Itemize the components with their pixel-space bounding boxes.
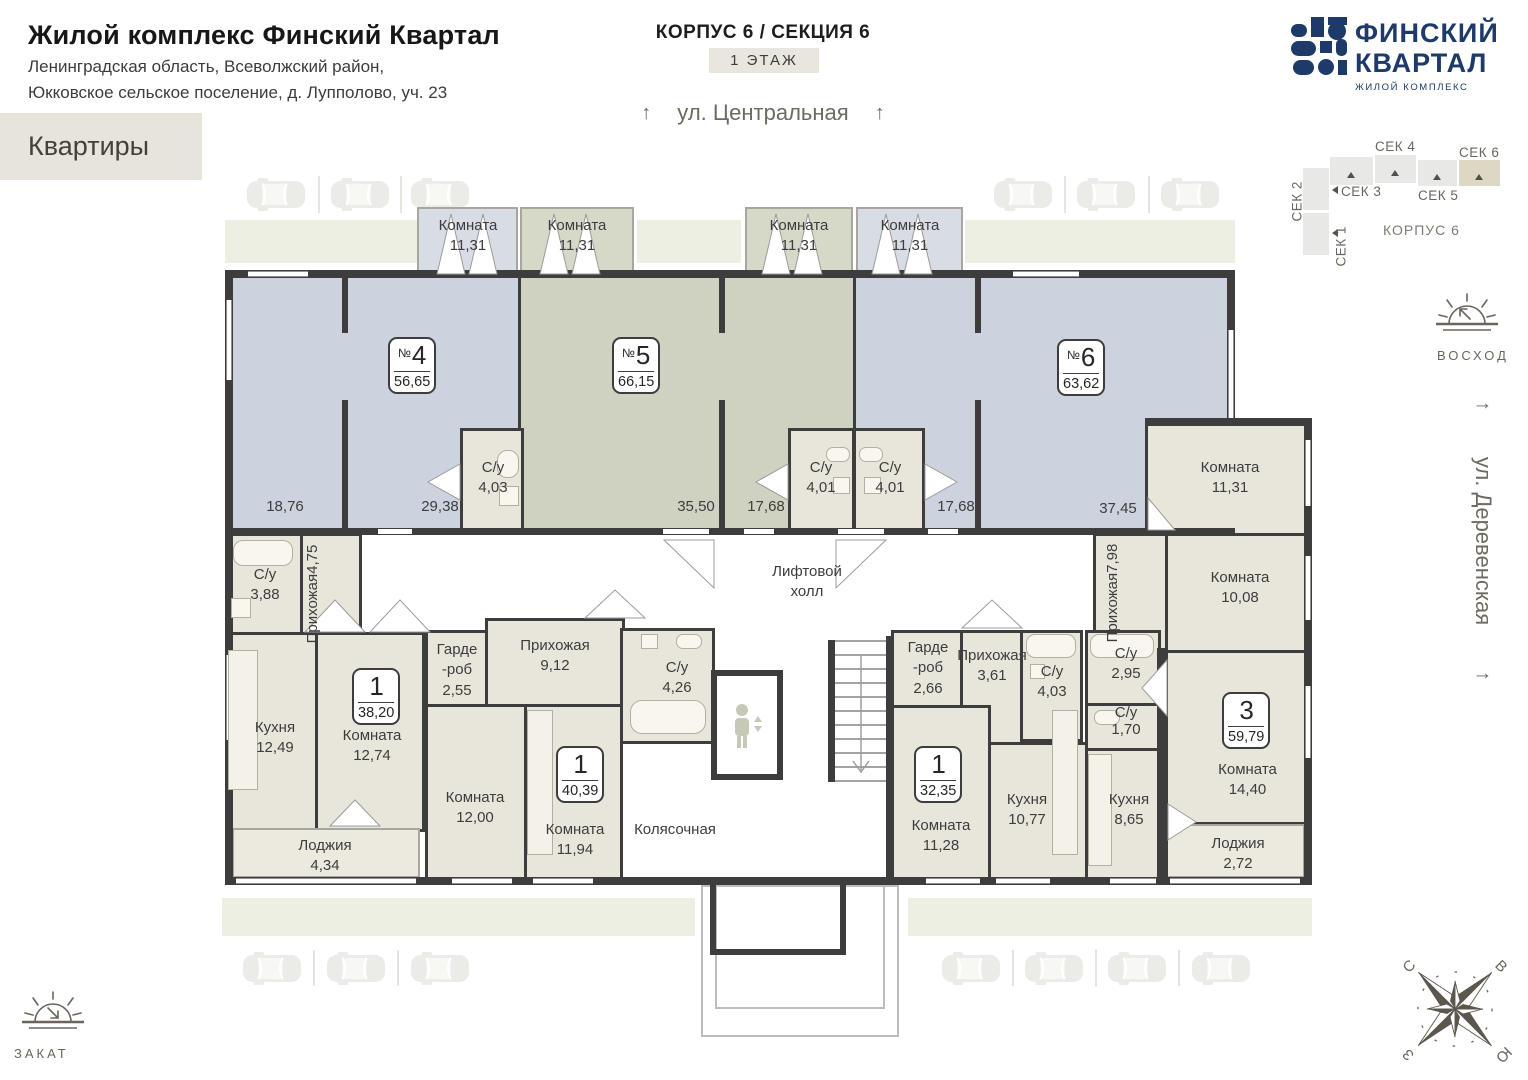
logo-line-1: ФИНСКИЙ xyxy=(1355,18,1499,48)
room-label: Прихожая9,12 xyxy=(495,636,615,677)
room-label: Гарде -роб2,66 xyxy=(896,638,960,699)
room-label: Комната11,31 xyxy=(1160,458,1300,499)
room-label: С/у4,01 xyxy=(789,458,853,499)
sidewalk-band xyxy=(908,898,1312,936)
staircase xyxy=(834,640,888,782)
floorplan-page: Жилой комплекс Финский Квартал Ленинград… xyxy=(0,0,1528,1080)
parked-car-icon xyxy=(1076,176,1136,213)
toilet-icon xyxy=(676,634,702,649)
room-label: Комната11,31 xyxy=(746,216,852,257)
zone-area: 37,45 xyxy=(1088,500,1148,517)
bathtub-icon xyxy=(1026,634,1076,658)
wall xyxy=(975,270,981,333)
address-line-1: Ленинградская область, Всеволжский район… xyxy=(28,57,384,77)
zone-area: 18,76 xyxy=(255,498,315,515)
sunset-icon xyxy=(20,986,86,1038)
parking-divider xyxy=(1148,176,1150,213)
stroller-room-label: Колясочная xyxy=(615,820,735,840)
section-label-6: СЕК 6 xyxy=(1459,145,1499,160)
section-pointer-3 xyxy=(1347,172,1355,178)
logo-tagline: ЖИЛОЙ КОМПЛЕКС xyxy=(1355,82,1499,93)
apartment-badge-4[interactable]: №4 56,65 xyxy=(388,337,436,394)
section-label-3: СЕК 3 xyxy=(1341,184,1381,199)
parked-car-icon xyxy=(1024,950,1084,987)
window xyxy=(996,878,1050,884)
room-label: Прихожая7,98 xyxy=(1103,538,1159,648)
section-block-2[interactable] xyxy=(1303,168,1329,210)
parking-divider xyxy=(397,950,399,986)
room-label: Лоджия4,34 xyxy=(250,836,400,877)
parked-car-icon xyxy=(246,176,306,213)
sidewalk-band xyxy=(965,220,1235,263)
door-opening xyxy=(838,529,884,534)
parking-divider xyxy=(313,950,315,986)
sunset-label: ЗАКАТ xyxy=(14,1046,69,1061)
flats-tab-label: Квартиры xyxy=(28,131,149,162)
room-label: Комната11,28 xyxy=(895,816,987,857)
building-section-label: КОРПУС 6 / СЕКЦИЯ 6 xyxy=(560,22,966,44)
sidewalk-band xyxy=(222,898,695,936)
room-label: Комната12,74 xyxy=(322,726,422,767)
street-central-label: ул. Центральная xyxy=(677,100,848,126)
section-pointer-4 xyxy=(1391,170,1399,176)
parking-divider xyxy=(400,176,402,213)
section-pointer-2 xyxy=(1332,186,1338,194)
wall-exterior xyxy=(1145,418,1312,426)
room-label: Комната11,31 xyxy=(521,216,633,257)
room-label: С/у4,03 xyxy=(462,458,524,499)
section-label-1: СЕК 1 xyxy=(1334,207,1349,267)
wall xyxy=(828,640,835,782)
sunrise-icon xyxy=(1434,288,1500,340)
section-label-2: СЕК 2 xyxy=(1290,162,1305,222)
window xyxy=(1305,686,1311,758)
parked-car-icon xyxy=(1160,176,1220,213)
room-label: Лоджия2,72 xyxy=(1178,834,1298,875)
floor-badge[interactable]: 1 ЭТАЖ xyxy=(709,48,819,73)
parked-car-icon xyxy=(410,950,470,987)
apartment-badge-5[interactable]: №5 66,15 xyxy=(612,337,660,394)
zone-area: 17,68 xyxy=(736,498,796,515)
flats-tab[interactable]: Квартиры xyxy=(0,113,202,180)
apartment-badge-1a[interactable]: 1 38,20 xyxy=(352,668,400,725)
apartment-badge-1c[interactable]: 1 32,35 xyxy=(914,746,962,803)
kitchen-unit-icon xyxy=(1052,710,1078,855)
parked-car-icon xyxy=(993,176,1053,213)
bathtub-icon xyxy=(630,700,706,734)
bathtub-icon xyxy=(233,540,293,566)
apartment-badge-6[interactable]: №6 63,62 xyxy=(1057,339,1105,396)
door-opening xyxy=(663,529,709,534)
room-label: Комната10,08 xyxy=(1170,568,1310,609)
room-label: Комната11,31 xyxy=(858,216,962,257)
window xyxy=(533,878,593,884)
window xyxy=(1110,878,1156,884)
room-label: Кухня8,65 xyxy=(1098,790,1160,831)
zone-area: 35,50 xyxy=(666,498,726,515)
korpus-map-label: КОРПУС 6 xyxy=(1383,222,1460,238)
room-label: Комната12,00 xyxy=(425,788,525,829)
room-label: С/у3,88 xyxy=(230,565,300,606)
street-derevenskaya: ↑ ул. Деревенская ↑ xyxy=(1470,401,1496,681)
room-label: Прихожая3,61 xyxy=(952,646,1032,687)
parking-divider xyxy=(1012,950,1014,986)
room-label: Кухня10,77 xyxy=(985,790,1069,831)
lift-hall-label: Лифтовой холл xyxy=(752,562,862,603)
window xyxy=(1170,878,1300,884)
window xyxy=(926,878,980,884)
parking-divider xyxy=(1095,950,1097,986)
wall xyxy=(342,270,348,333)
entrance-vestibule xyxy=(710,885,846,955)
section-block-3[interactable] xyxy=(1330,157,1373,185)
section-label-4: СЕК 4 xyxy=(1375,139,1415,154)
room-label: С/у4,03 xyxy=(1023,662,1081,703)
sunrise-label: ВОСХОД xyxy=(1437,348,1509,363)
door-opening xyxy=(744,529,774,534)
room-label: Гарде -роб2,55 xyxy=(428,640,486,701)
room-label: С/у4,26 xyxy=(642,658,712,699)
wall-exterior xyxy=(225,270,1235,278)
logo-line-2: КВАРТАЛ xyxy=(1355,48,1499,78)
arrow-up-icon: ↑ xyxy=(641,102,651,125)
room-label: Комната14,40 xyxy=(1180,760,1315,801)
sidewalk-band xyxy=(225,220,417,263)
window xyxy=(226,300,232,380)
elevator-shaft xyxy=(711,670,783,780)
street-derevenskaya-label: ул. Деревенская xyxy=(1470,457,1496,625)
room-label: Комната11,94 xyxy=(530,820,620,861)
apartment-badge-1b[interactable]: 1 40,39 xyxy=(556,746,604,803)
wall xyxy=(886,636,893,885)
wall xyxy=(342,400,348,535)
parking-divider xyxy=(1064,176,1066,213)
arrow-icon: ↑ xyxy=(1472,401,1495,411)
window xyxy=(236,878,416,884)
sink-icon xyxy=(641,634,658,649)
logo[interactable]: ФИНСКИЙ КВАРТАЛ ЖИЛОЙ КОМПЛЕКС xyxy=(1355,18,1499,93)
parking-divider xyxy=(318,176,320,213)
window xyxy=(248,271,308,277)
window xyxy=(452,878,512,884)
elevator-icon xyxy=(728,700,766,750)
zone-area: 17,68 xyxy=(926,498,986,515)
window xyxy=(1013,271,1079,277)
parked-car-icon xyxy=(326,950,386,987)
door-opening xyxy=(928,529,958,534)
arrow-icon: ↑ xyxy=(1472,671,1495,681)
room-label: Прихожая4,75 xyxy=(303,539,359,649)
wall xyxy=(225,528,1235,535)
section-block-6[interactable] xyxy=(1459,160,1500,186)
zone-area: 29,38 xyxy=(410,498,470,515)
parked-car-icon xyxy=(1191,950,1251,987)
door-opening xyxy=(378,529,412,534)
room-label: С/у1,70 xyxy=(1093,704,1159,739)
section-label-5: СЕК 5 xyxy=(1418,188,1458,203)
parked-car-icon xyxy=(330,176,390,213)
section-pointer-6 xyxy=(1475,174,1483,180)
parked-car-icon xyxy=(1107,950,1167,987)
sidewalk-band xyxy=(637,220,741,263)
section-block-1[interactable] xyxy=(1303,213,1329,255)
logo-icon xyxy=(1291,17,1347,79)
section-block-5[interactable] xyxy=(1418,160,1457,186)
room-label: С/у4,01 xyxy=(856,458,924,499)
section-block-4[interactable] xyxy=(1375,155,1416,183)
room-label: Кухня12,49 xyxy=(235,718,315,759)
parked-car-icon xyxy=(242,950,302,987)
street-central: ↑ ул. Центральная ↑ xyxy=(563,100,963,126)
page-title: Жилой комплекс Финский Квартал xyxy=(28,20,500,51)
section-pointer-5 xyxy=(1433,174,1441,180)
address-line-2: Юкковское сельское поселение, д. Лупполо… xyxy=(28,83,447,103)
arrow-up-icon: ↑ xyxy=(875,102,885,125)
room-label: С/у2,95 xyxy=(1093,644,1159,685)
parked-car-icon xyxy=(941,950,1001,987)
apartment-badge-3[interactable]: 3 59,79 xyxy=(1222,692,1270,749)
window xyxy=(1228,330,1234,418)
window xyxy=(1305,440,1311,506)
parking-divider xyxy=(1178,950,1180,986)
room-label: Комната11,31 xyxy=(419,216,517,257)
wall xyxy=(719,270,725,333)
